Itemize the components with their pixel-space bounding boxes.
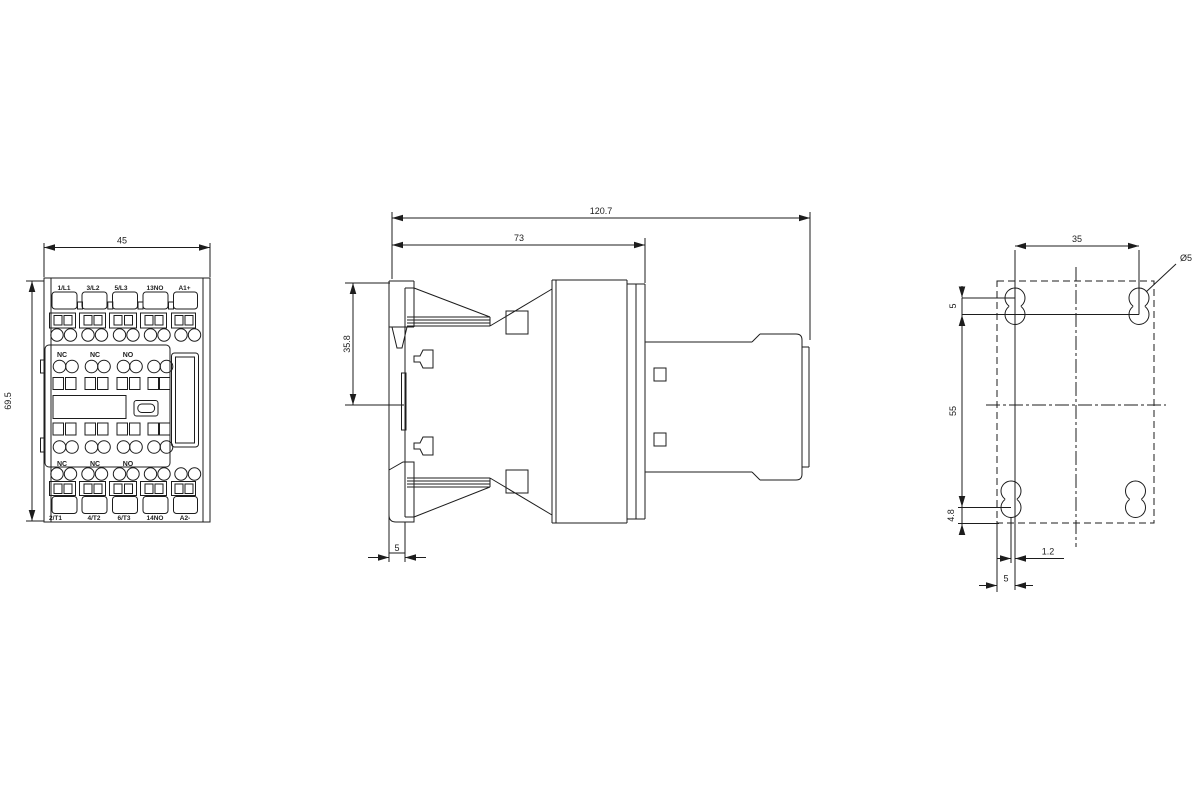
aux-label: NC (90, 461, 100, 468)
dim-slot-width: 5 (1003, 574, 1008, 584)
dim-bottom-edge-offset: 4.8 (946, 509, 956, 522)
dim-front-height: 69.5 (3, 392, 13, 410)
keyhole-slot (1001, 481, 1021, 518)
dim-clip-height: 35.8 (342, 335, 352, 353)
front-bottom-clamp-windows (50, 482, 196, 496)
dim-slot-offset: 1.2 (1042, 547, 1055, 557)
clip-release-tab (414, 350, 433, 368)
contactor-dimension-drawing: 45 69.5 1/L1 3/L2 5/L3 13NO A1+ (0, 0, 1200, 800)
side-front-block (552, 280, 645, 523)
front-aux-panel: NC NC NO NC NC NO (41, 345, 173, 468)
terminal-label: A2- (180, 515, 190, 522)
terminal-label: 6/T3 (117, 515, 130, 522)
terminal-label: A1+ (178, 285, 190, 292)
terminal-label: 1/L1 (57, 285, 70, 292)
side-clip-dimension: 35.8 (342, 283, 404, 405)
dimension-drawing-page: 45 69.5 1/L1 3/L2 5/L3 13NO A1+ (0, 0, 1200, 800)
terminal-label: 5/L3 (114, 285, 127, 292)
front-top-release-holes (51, 329, 201, 341)
hole-diameter-callout: Ø5 (1146, 253, 1192, 292)
front-top-lugs (52, 292, 198, 309)
left-dimension-chain: 5 55 4.8 (946, 286, 1139, 535)
terminal-label: 4/T2 (87, 515, 100, 522)
dim-total-depth: 120.7 (590, 206, 613, 216)
plug-connector-module (645, 334, 809, 480)
side-view: 120.7 73 35.8 5 (342, 206, 810, 562)
dim-keyhole-offset: 5 (948, 303, 958, 308)
clip-release-tab (414, 437, 433, 455)
front-height-dimension: 69.5 (3, 281, 44, 521)
dim-body-depth: 73 (514, 233, 524, 243)
dim-hole-diameter: Ø5 (1180, 253, 1192, 263)
keyhole-slot (1126, 481, 1146, 518)
hole-spacing-horizontal-dimension: 35 (1015, 234, 1139, 590)
front-view: 45 69.5 1/L1 3/L2 5/L3 13NO A1+ (3, 236, 210, 523)
dim-rail-plate-depth: 5 (394, 543, 399, 553)
terminal-label: 13NO (147, 285, 164, 292)
dim-hole-spacing-v: 55 (948, 406, 958, 416)
side-housing (405, 288, 552, 517)
aux-label: NC (90, 352, 100, 359)
aux-label: NO (123, 352, 134, 359)
terminal-label: 2/T1 (49, 515, 62, 522)
bottom-dimension-chain: 1.2 5 (979, 517, 1064, 592)
plate-bottom-block (389, 462, 414, 522)
dim-front-width: 45 (117, 236, 127, 246)
dim-hole-spacing-h: 35 (1072, 234, 1082, 244)
aux-label: NC (57, 461, 67, 468)
terminal-label: 14NO (147, 515, 164, 522)
front-coil-strip (172, 353, 199, 447)
front-bottom-release-holes (51, 468, 201, 480)
front-bottom-lugs (52, 497, 198, 514)
front-top-clamp-windows (50, 313, 196, 328)
aux-label: NC (57, 352, 67, 359)
front-width-dimension: 45 (44, 236, 210, 278)
terminal-label: 3/L2 (86, 285, 99, 292)
aux-label: NO (123, 461, 134, 468)
drilling-plan: 35 Ø5 5 55 4.8 1. (946, 234, 1192, 592)
label-window (53, 396, 126, 419)
